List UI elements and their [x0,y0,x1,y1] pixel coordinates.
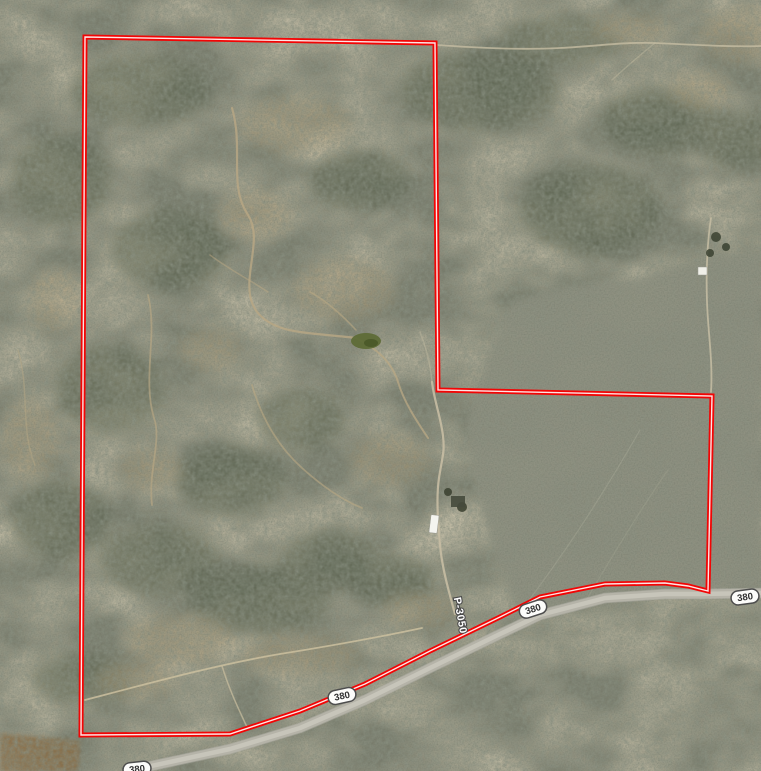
route-shield-label: 380 [736,591,753,604]
tree [722,243,730,251]
route-shield-label: 380 [129,763,146,771]
dark-roof-building [451,496,465,507]
satellite-map[interactable]: P-3050 380380380380 [0,0,761,771]
tree [711,232,721,242]
white-ranch-building [698,267,707,275]
map-canvas: P-3050 380380380380 [0,0,761,771]
tree [444,488,452,496]
photo-grain [0,0,761,771]
pond-vegetation [351,333,381,349]
terrain-imagery [0,0,761,771]
tree [706,249,714,257]
